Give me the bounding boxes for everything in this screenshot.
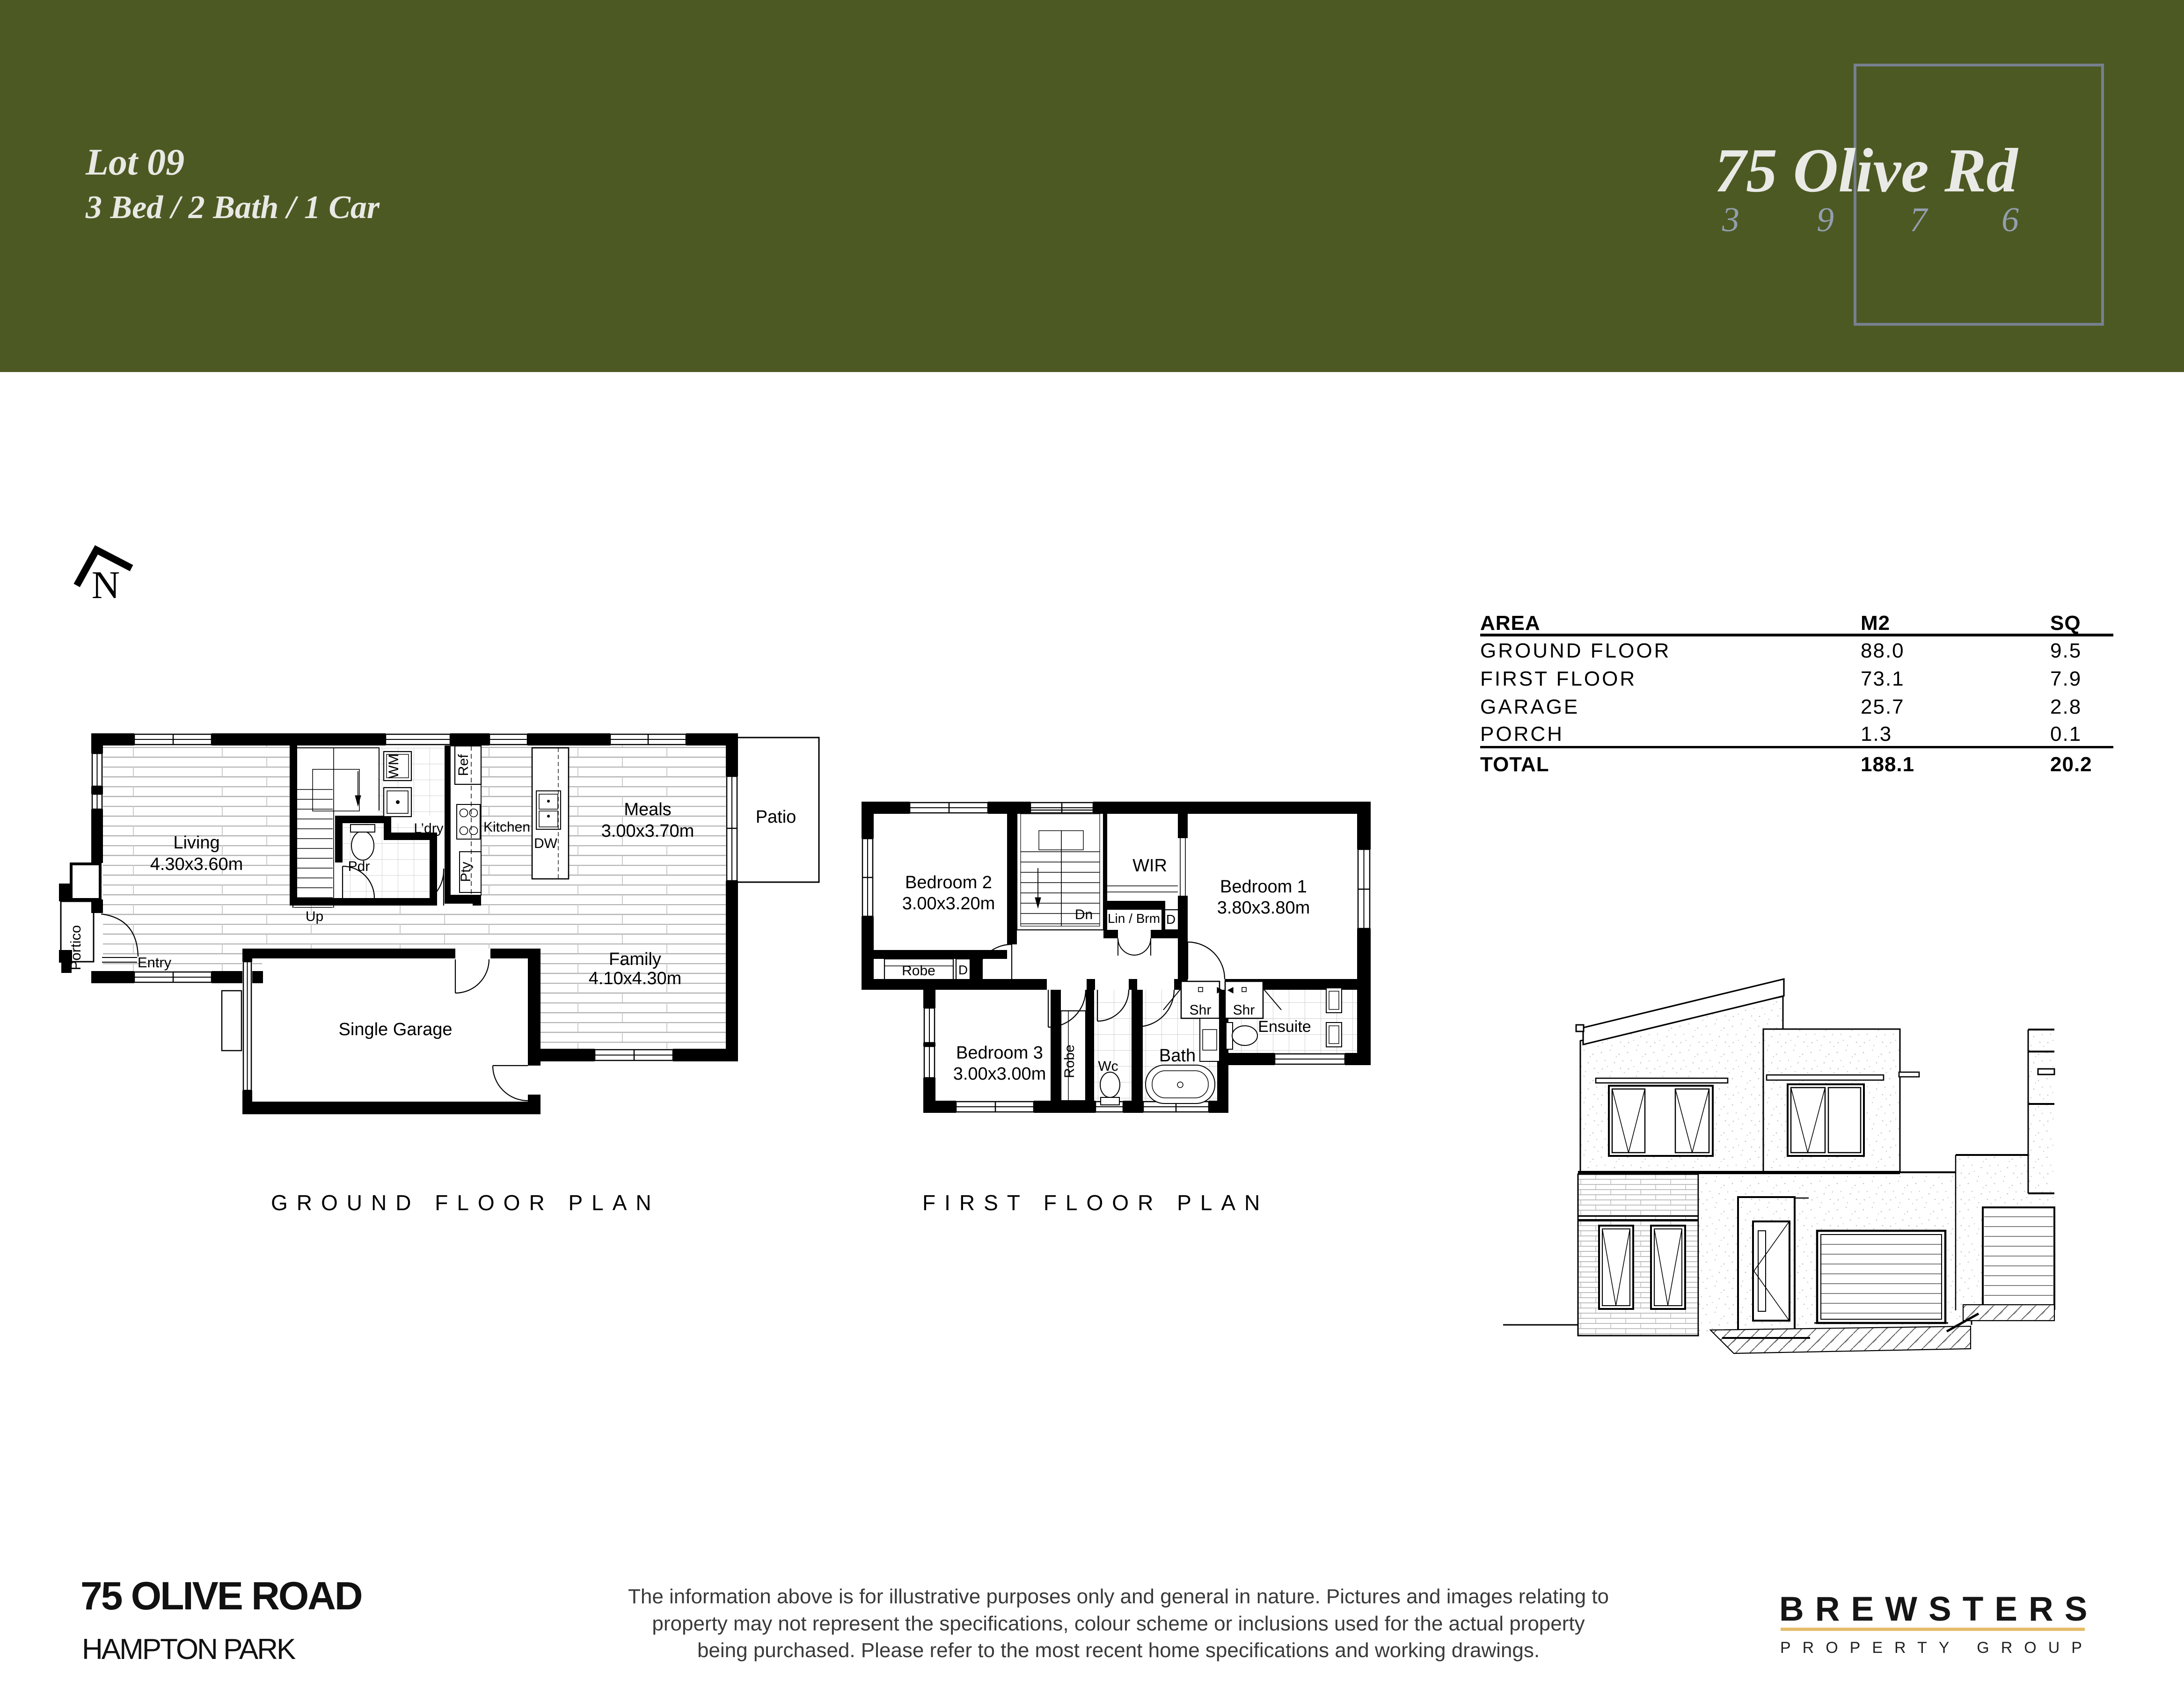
svg-text:WM: WM xyxy=(386,753,402,778)
svg-text:Bedroom 1: Bedroom 1 xyxy=(1220,877,1307,897)
svg-text:Living: Living xyxy=(173,833,219,853)
svg-text:Robe: Robe xyxy=(902,963,935,979)
svg-text:Pdr: Pdr xyxy=(348,859,370,874)
svg-text:Family: Family xyxy=(609,950,661,969)
svg-text:Shr: Shr xyxy=(1233,1002,1255,1018)
svg-text:D: D xyxy=(958,963,968,977)
svg-text:Entry: Entry xyxy=(138,954,172,971)
svg-text:Wc: Wc xyxy=(1098,1059,1118,1074)
svg-text:Pty: Pty xyxy=(458,862,474,882)
svg-text:N: N xyxy=(92,563,120,607)
svg-text:D: D xyxy=(1166,912,1176,927)
svg-text:3.00x3.00m: 3.00x3.00m xyxy=(953,1064,1046,1084)
svg-text:Single Garage: Single Garage xyxy=(339,1020,453,1039)
svg-text:Shr: Shr xyxy=(1190,1002,1212,1018)
svg-text:Kitchen: Kitchen xyxy=(483,819,530,835)
svg-text:FIRST FLOOR PLAN: FIRST FLOOR PLAN xyxy=(922,1191,1269,1215)
svg-text:4.10x4.30m: 4.10x4.30m xyxy=(589,969,682,988)
svg-text:Patio: Patio xyxy=(756,807,796,827)
svg-text:Ref: Ref xyxy=(456,754,471,776)
svg-text:Lin / Brm: Lin / Brm xyxy=(1108,911,1160,926)
svg-text:Up: Up xyxy=(306,909,323,924)
svg-text:L’dry: L’dry xyxy=(414,821,443,836)
svg-text:WIR: WIR xyxy=(1132,856,1167,876)
svg-text:Robe: Robe xyxy=(1062,1045,1077,1078)
svg-text:GROUND FLOOR PLAN: GROUND FLOOR PLAN xyxy=(271,1191,660,1215)
svg-text:Bath: Bath xyxy=(1159,1046,1196,1066)
svg-text:3.00x3.20m: 3.00x3.20m xyxy=(902,894,995,913)
svg-text:3.00x3.70m: 3.00x3.70m xyxy=(601,821,694,841)
svg-text:3.80x3.80m: 3.80x3.80m xyxy=(1217,898,1310,918)
svg-text:Bedroom 3: Bedroom 3 xyxy=(956,1043,1043,1063)
svg-text:Bedroom 2: Bedroom 2 xyxy=(905,873,992,892)
svg-text:Dn: Dn xyxy=(1075,907,1093,922)
svg-text:Meals: Meals xyxy=(624,800,671,819)
svg-text:Portico: Portico xyxy=(67,925,84,970)
svg-text:Ensuite: Ensuite xyxy=(1258,1018,1311,1036)
svg-text:4.30x3.60m: 4.30x3.60m xyxy=(150,855,243,874)
svg-text:DW: DW xyxy=(534,836,558,851)
